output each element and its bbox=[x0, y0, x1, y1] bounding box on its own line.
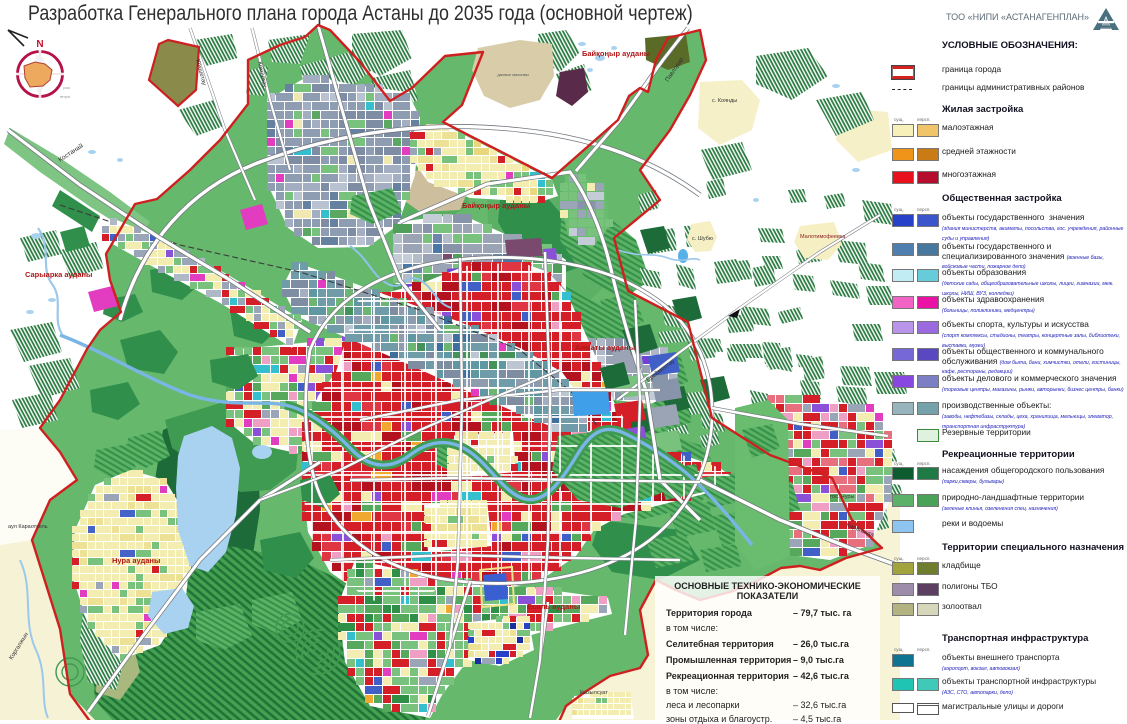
svg-text:Есиль ауданы: Есиль ауданы bbox=[527, 602, 580, 611]
svg-text:N: N bbox=[36, 39, 43, 50]
svg-text:аул Караоткель: аул Караоткель bbox=[8, 524, 48, 530]
svg-text:Нура ауданы: Нура ауданы bbox=[112, 556, 160, 565]
svg-text:Алматы ауданы: Алматы ауданы bbox=[575, 343, 635, 352]
svg-text:Байқоңыр ауданы: Байқоңыр ауданы bbox=[462, 201, 530, 210]
svg-text:с. Шубю: с. Шубю bbox=[692, 236, 713, 242]
svg-text:ветров: ветров bbox=[60, 95, 70, 99]
svg-text:гос. Нуры: гос. Нуры bbox=[830, 494, 854, 500]
svg-text:роза: роза bbox=[63, 86, 70, 90]
svg-text:дачные массивы: дачные массивы bbox=[497, 72, 528, 77]
svg-text:Сарыарка ауданы: Сарыарка ауданы bbox=[25, 270, 92, 279]
svg-text:Кызылсуат: Кызылсуат bbox=[580, 690, 608, 696]
svg-text:с. Коянды: с. Коянды bbox=[712, 98, 737, 104]
svg-text:Байқоңыр ауданы: Байқоңыр ауданы bbox=[582, 49, 650, 58]
svg-text:Малотимофеевка: Малотимофеевка bbox=[800, 234, 846, 240]
